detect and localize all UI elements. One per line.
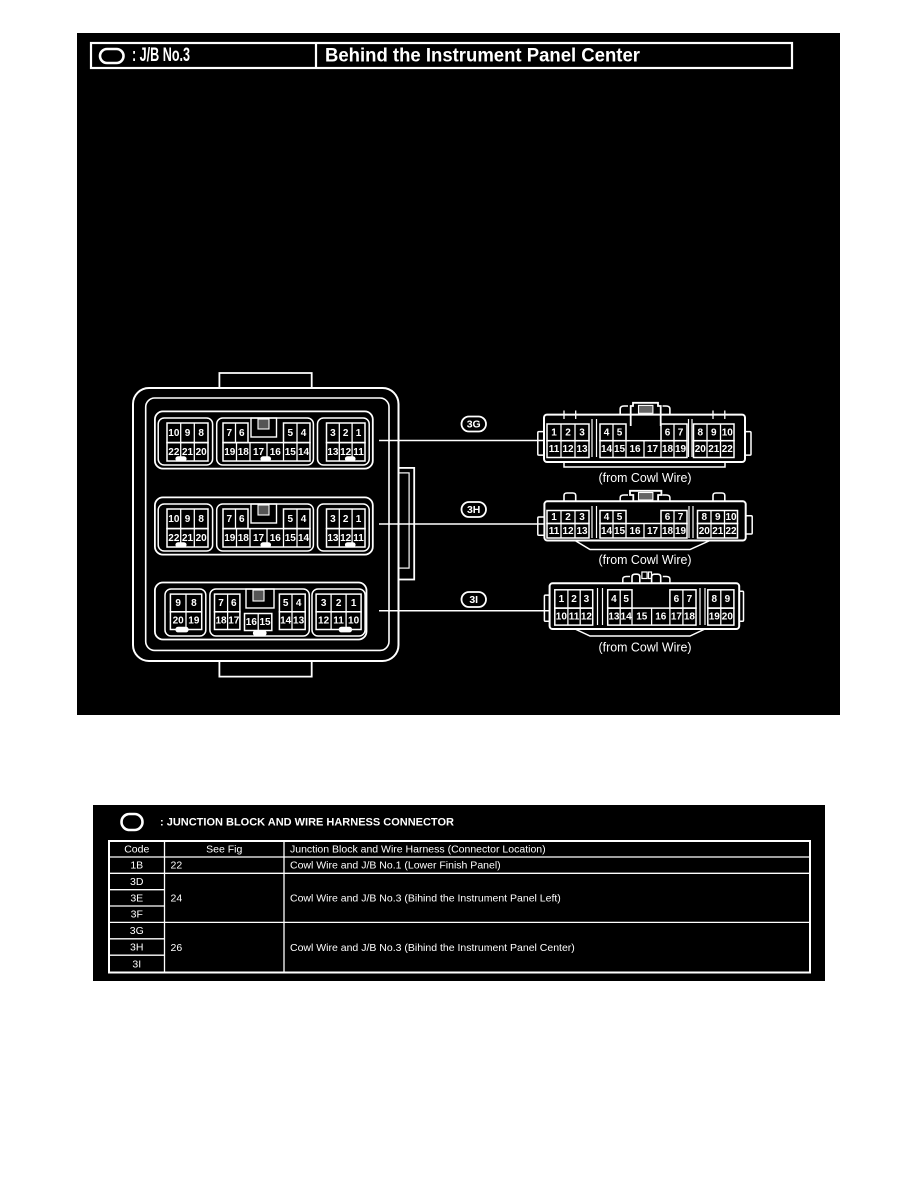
svg-text:21: 21: [182, 447, 194, 458]
svg-text:Code: Code: [124, 844, 149, 856]
svg-text:(from Cowl Wire): (from Cowl Wire): [599, 640, 692, 655]
svg-text:13: 13: [576, 444, 588, 455]
svg-text:11: 11: [353, 533, 364, 544]
svg-text:3G: 3G: [130, 925, 144, 937]
svg-text:17: 17: [253, 447, 265, 458]
svg-text:8: 8: [198, 428, 204, 439]
svg-text:11: 11: [549, 444, 560, 455]
svg-text:10: 10: [168, 514, 180, 525]
svg-text:Cowl Wire and J/B No.3 (Bihind: Cowl Wire and J/B No.3 (Bihind the Instr…: [290, 892, 561, 904]
svg-text:22: 22: [722, 444, 734, 455]
svg-text:13: 13: [327, 533, 339, 544]
svg-text:: J/B No.3: : J/B No.3: [132, 45, 190, 66]
svg-text:9: 9: [725, 594, 731, 605]
svg-text:15: 15: [285, 447, 297, 458]
svg-text:22: 22: [171, 860, 183, 872]
svg-text:13: 13: [576, 526, 588, 537]
svg-text:3: 3: [330, 428, 336, 439]
svg-text:15: 15: [285, 533, 297, 544]
svg-text:14: 14: [621, 612, 633, 623]
svg-text:7: 7: [687, 594, 693, 605]
svg-text:2: 2: [565, 427, 571, 438]
svg-text:3E: 3E: [130, 892, 143, 904]
svg-text:4: 4: [301, 428, 307, 439]
svg-text:17: 17: [253, 533, 265, 544]
svg-text:16: 16: [270, 533, 282, 544]
svg-text:19: 19: [675, 526, 687, 537]
svg-text:14: 14: [601, 526, 613, 537]
svg-text:13: 13: [327, 447, 339, 458]
svg-text:7: 7: [218, 598, 224, 609]
svg-text:3H: 3H: [130, 942, 143, 954]
svg-text:3: 3: [579, 427, 585, 438]
svg-text:9: 9: [185, 428, 191, 439]
svg-text:12: 12: [318, 616, 330, 627]
svg-text:3D: 3D: [130, 876, 144, 888]
svg-text:10: 10: [168, 428, 180, 439]
svg-text:12: 12: [581, 612, 593, 623]
svg-text:14: 14: [601, 444, 613, 455]
svg-text:9: 9: [185, 514, 191, 525]
svg-text:16: 16: [629, 444, 641, 455]
svg-text:8: 8: [701, 512, 707, 523]
svg-text:10: 10: [348, 616, 360, 627]
svg-text:: JUNCTION BLOCK AND WIRE HARN: : JUNCTION BLOCK AND WIRE HARNESS CONNEC…: [160, 817, 454, 829]
svg-text:4: 4: [611, 594, 617, 605]
svg-text:See Fig: See Fig: [206, 844, 242, 856]
svg-text:4: 4: [604, 427, 610, 438]
svg-text:2: 2: [343, 428, 349, 439]
svg-text:6: 6: [665, 427, 671, 438]
svg-text:19: 19: [224, 447, 236, 458]
svg-text:4: 4: [301, 514, 307, 525]
svg-text:21: 21: [182, 533, 194, 544]
svg-text:18: 18: [215, 616, 227, 627]
svg-text:24: 24: [171, 892, 183, 904]
svg-text:10: 10: [722, 427, 734, 438]
svg-text:6: 6: [674, 594, 680, 605]
svg-text:Junction Block and Wire Harnes: Junction Block and Wire Harness (Connect…: [290, 844, 546, 856]
svg-text:14: 14: [280, 616, 292, 627]
svg-text:14: 14: [298, 447, 310, 458]
svg-text:2: 2: [343, 514, 349, 525]
svg-text:17: 17: [647, 526, 659, 537]
svg-text:6: 6: [239, 514, 245, 525]
svg-text:8: 8: [697, 427, 703, 438]
svg-text:21: 21: [712, 526, 724, 537]
svg-text:20: 20: [173, 616, 185, 627]
svg-text:16: 16: [270, 447, 282, 458]
svg-text:15: 15: [259, 617, 271, 628]
svg-text:1: 1: [356, 514, 362, 525]
svg-text:3: 3: [321, 598, 327, 609]
svg-text:Cowl Wire and J/B No.1 (Lower: Cowl Wire and J/B No.1 (Lower Finish Pan…: [290, 860, 501, 872]
svg-text:5: 5: [283, 598, 289, 609]
svg-text:16: 16: [629, 526, 641, 537]
svg-text:11: 11: [353, 447, 364, 458]
svg-text:12: 12: [562, 526, 574, 537]
svg-text:10: 10: [725, 512, 737, 523]
svg-text:3: 3: [579, 512, 585, 523]
svg-text:15: 15: [614, 444, 626, 455]
svg-text:19: 19: [675, 444, 687, 455]
svg-text:5: 5: [623, 594, 629, 605]
svg-text:16: 16: [655, 612, 667, 623]
svg-text:Cowl Wire and J/B No.3 (Bihind: Cowl Wire and J/B No.3 (Bihind the Instr…: [290, 942, 575, 954]
svg-text:9: 9: [715, 512, 721, 523]
svg-text:1: 1: [351, 598, 357, 609]
svg-text:9: 9: [175, 598, 181, 609]
svg-text:11: 11: [549, 526, 560, 537]
svg-text:2: 2: [565, 512, 571, 523]
svg-text:17: 17: [228, 616, 240, 627]
svg-text:3I: 3I: [469, 594, 478, 606]
svg-text:3: 3: [584, 594, 590, 605]
svg-text:(from Cowl Wire): (from Cowl Wire): [599, 470, 692, 485]
svg-text:12: 12: [340, 533, 352, 544]
svg-text:22: 22: [168, 447, 180, 458]
svg-text:Behind the Instrument Panel Ce: Behind the Instrument Panel Center: [325, 45, 640, 67]
svg-text:22: 22: [725, 526, 737, 537]
svg-text:7: 7: [678, 427, 684, 438]
svg-text:8: 8: [712, 594, 718, 605]
svg-text:6: 6: [665, 512, 671, 523]
svg-text:20: 20: [196, 533, 208, 544]
svg-text:26: 26: [171, 942, 183, 954]
svg-text:1: 1: [551, 512, 557, 523]
svg-text:6: 6: [239, 428, 245, 439]
svg-text:3F: 3F: [131, 909, 143, 921]
svg-text:17: 17: [647, 444, 659, 455]
svg-text:20: 20: [196, 447, 208, 458]
svg-text:1B: 1B: [130, 860, 143, 872]
svg-text:15: 15: [636, 612, 648, 623]
svg-text:2: 2: [336, 598, 342, 609]
svg-text:5: 5: [617, 512, 623, 523]
svg-text:9: 9: [711, 427, 717, 438]
svg-text:5: 5: [617, 427, 623, 438]
svg-text:18: 18: [238, 447, 250, 458]
svg-text:20: 20: [722, 612, 734, 623]
svg-text:20: 20: [695, 444, 707, 455]
svg-text:(from Cowl Wire): (from Cowl Wire): [599, 552, 692, 567]
svg-text:1: 1: [559, 594, 565, 605]
svg-text:19: 19: [188, 616, 200, 627]
svg-text:5: 5: [287, 514, 293, 525]
svg-text:4: 4: [604, 512, 610, 523]
svg-text:11: 11: [333, 616, 344, 627]
svg-text:19: 19: [224, 533, 236, 544]
svg-text:13: 13: [293, 616, 305, 627]
svg-text:12: 12: [340, 447, 352, 458]
svg-text:8: 8: [191, 598, 197, 609]
svg-text:2: 2: [571, 594, 577, 605]
svg-text:1: 1: [356, 428, 362, 439]
svg-text:7: 7: [678, 512, 684, 523]
svg-text:13: 13: [608, 612, 620, 623]
svg-text:1: 1: [551, 427, 557, 438]
svg-text:3: 3: [330, 514, 336, 525]
svg-text:6: 6: [231, 598, 237, 609]
svg-text:20: 20: [699, 526, 711, 537]
svg-text:3H: 3H: [467, 504, 480, 516]
svg-text:11: 11: [569, 612, 580, 623]
svg-text:3I: 3I: [132, 958, 141, 970]
svg-text:18: 18: [684, 612, 696, 623]
svg-text:19: 19: [709, 612, 721, 623]
svg-text:16: 16: [246, 617, 258, 628]
svg-text:8: 8: [198, 514, 204, 525]
svg-text:22: 22: [168, 533, 180, 544]
svg-text:21: 21: [708, 444, 720, 455]
svg-text:14: 14: [298, 533, 310, 544]
svg-text:12: 12: [562, 444, 574, 455]
svg-text:3G: 3G: [467, 419, 481, 431]
svg-text:7: 7: [226, 428, 232, 439]
svg-text:18: 18: [662, 526, 674, 537]
svg-text:7: 7: [226, 514, 232, 525]
svg-text:5: 5: [287, 428, 293, 439]
svg-text:18: 18: [662, 444, 674, 455]
svg-text:10: 10: [556, 612, 568, 623]
svg-text:4: 4: [296, 598, 302, 609]
svg-text:18: 18: [238, 533, 250, 544]
svg-text:15: 15: [614, 526, 626, 537]
svg-text:17: 17: [671, 612, 683, 623]
